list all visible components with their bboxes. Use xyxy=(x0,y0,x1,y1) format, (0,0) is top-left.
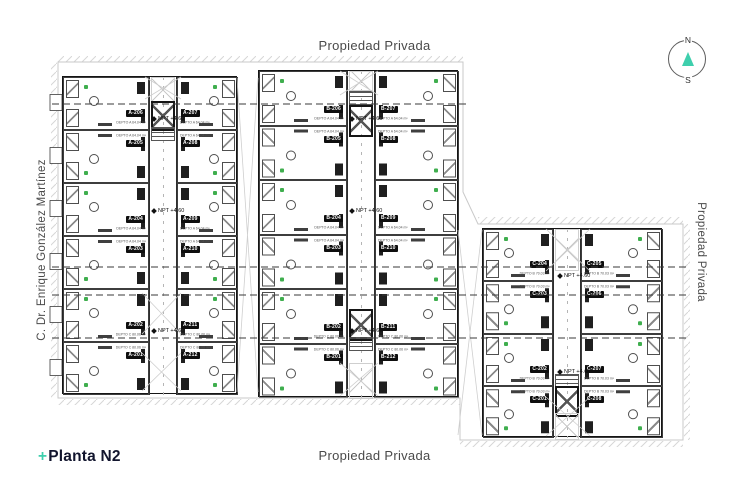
level-text: NPT +4.60 xyxy=(158,328,184,334)
bed-icon xyxy=(222,321,235,339)
bed-icon xyxy=(222,133,235,151)
unit-C-207: C-207DEPTO B 70.03 m² xyxy=(581,334,663,386)
bed-icon xyxy=(486,260,499,278)
bed-icon xyxy=(262,238,275,256)
unit-A-202: A-202DEPTO C 80.06 m² xyxy=(63,289,149,342)
bathroom-icon xyxy=(541,421,549,433)
bed-icon xyxy=(486,389,499,407)
unit-C-204: C-204DEPTO B 70.03 m² xyxy=(483,229,553,281)
light-well xyxy=(349,71,373,91)
dining-table-icon xyxy=(423,368,433,378)
level-diamond-icon xyxy=(151,116,157,122)
plant-icon xyxy=(434,277,438,281)
unit-area-label: DEPTO C 80.06 m² xyxy=(116,346,146,349)
bed-icon xyxy=(486,417,499,435)
unit-B-211: B-211DEPTO C 80.06 m² xyxy=(375,289,459,344)
floor-plan-sheet: Propiedad Privada Propiedad Privada C. D… xyxy=(0,0,749,500)
bed-icon xyxy=(443,183,456,201)
bed-icon xyxy=(443,129,456,147)
unit-B-210: B-210DEPTO A 64.04 m² xyxy=(375,235,459,290)
bed-icon xyxy=(647,365,660,383)
unit-label: A-208 xyxy=(181,140,200,147)
bathroom-icon xyxy=(585,421,593,433)
unit-A-203: A-203DEPTO A 64.04 m² xyxy=(63,236,149,289)
bathroom-icon xyxy=(181,188,189,200)
bed-icon xyxy=(262,377,275,395)
unit-B-208: B-208DEPTO A 64.04 m² xyxy=(375,126,459,181)
plant-icon xyxy=(638,322,642,326)
kitchen-counter-icon xyxy=(616,379,630,382)
kitchen-counter-icon xyxy=(616,285,630,288)
bed-icon xyxy=(443,268,456,286)
unit-A-208: A-208DEPTO A 64.04 m² xyxy=(177,130,238,183)
unit-area-label: DEPTO A 64.04 m² xyxy=(314,239,344,242)
bed-icon xyxy=(443,74,456,92)
level-text: NPT +4.60 xyxy=(564,369,590,375)
unit-B-212: B-212DEPTO C 80.06 m² xyxy=(375,344,459,399)
unit-area-label: DEPTO A 64.04 m² xyxy=(378,239,408,242)
level-marker: NPT +4.60 xyxy=(558,369,590,375)
dining-table-icon xyxy=(423,200,433,210)
dining-table-icon xyxy=(89,96,99,106)
unit-furniture xyxy=(376,127,458,180)
bathroom-icon xyxy=(137,166,145,178)
unit-furniture xyxy=(64,237,148,288)
level-text: NPT +4.60 xyxy=(356,208,382,214)
bed-icon xyxy=(222,268,235,286)
unit-C-203: C-203DEPTO B 70.03 m² xyxy=(483,281,553,333)
bed-icon xyxy=(262,268,275,286)
unit-label: C-208 xyxy=(585,396,604,403)
bed-icon xyxy=(486,337,499,355)
bed-icon xyxy=(66,268,79,286)
kitchen-counter-icon xyxy=(616,390,630,393)
unit-B-203: B-203DEPTO A 64.04 m² xyxy=(259,235,347,290)
level-marker: NPT +4.60 xyxy=(152,116,184,122)
bed-icon xyxy=(262,347,275,365)
unit-area-label: DEPTO A 64.04 m² xyxy=(116,240,146,243)
unit-furniture xyxy=(178,131,237,182)
unit-area-label: DEPTO B 70.03 m² xyxy=(584,377,614,380)
bed-icon xyxy=(66,186,79,204)
unit-label: B-212 xyxy=(379,354,398,361)
unit-label: B-205 xyxy=(324,136,343,143)
dining-table-icon xyxy=(286,309,296,319)
unit-label: B-201 xyxy=(324,354,343,361)
kitchen-counter-icon xyxy=(294,348,308,351)
dining-table-icon xyxy=(423,259,433,269)
unit-label: A-206 xyxy=(126,110,145,117)
bathroom-icon xyxy=(181,82,189,94)
unit-A-204: A-204DEPTO A 64.04 m² xyxy=(63,183,149,236)
level-diamond-icon xyxy=(349,116,355,122)
unit-area-label: DEPTO B 70.03 m² xyxy=(584,390,614,393)
level-text: NPT +4.60 xyxy=(356,116,382,122)
unit-A-209: A-209DEPTO A 64.04 m² xyxy=(177,183,238,236)
dining-table-icon xyxy=(286,150,296,160)
unit-label: A-203 xyxy=(126,246,145,253)
bed-icon xyxy=(66,374,79,392)
unit-label: A-212 xyxy=(181,352,200,359)
bathroom-icon xyxy=(335,185,343,197)
bed-icon xyxy=(262,129,275,147)
dining-table-icon xyxy=(209,202,219,212)
unit-label: A-201 xyxy=(126,352,145,359)
plant-icon xyxy=(84,191,88,195)
unit-B-202: B-202DEPTO C 80.06 m² xyxy=(259,289,347,344)
building-block-c: C-204DEPTO B 70.03 m²C-203DEPTO B 70.03 … xyxy=(482,228,662,437)
dining-table-icon xyxy=(628,304,638,314)
bathroom-icon xyxy=(541,317,549,329)
level-diamond-icon xyxy=(151,328,157,334)
bed-icon xyxy=(486,365,499,383)
bed-icon xyxy=(443,377,456,395)
floor-plan-canvas: A-206DEPTO A 64.04 m²A-205DEPTO A 64.04 … xyxy=(0,0,749,500)
plant-icon xyxy=(638,237,642,241)
kitchen-counter-icon xyxy=(411,337,425,340)
plant-icon xyxy=(84,297,88,301)
plant-icon xyxy=(213,171,217,175)
dining-table-icon xyxy=(504,353,514,363)
unit-label: C-201 xyxy=(530,396,549,403)
stairs xyxy=(349,337,373,351)
dining-table-icon xyxy=(286,200,296,210)
dining-table-icon xyxy=(209,308,219,318)
bed-icon xyxy=(443,214,456,232)
bed-icon xyxy=(443,347,456,365)
unit-area-label: DEPTO B 70.03 m² xyxy=(520,286,550,289)
unit-label: C-206 xyxy=(585,291,604,298)
bed-icon xyxy=(262,214,275,232)
bathroom-icon xyxy=(335,76,343,88)
unit-A-205: A-205DEPTO A 64.04 m² xyxy=(63,130,149,183)
plant-icon xyxy=(504,426,508,430)
unit-area-label: DEPTO B 70.03 m² xyxy=(584,286,614,289)
unit-area-label: DEPTO C 80.06 m² xyxy=(378,348,408,351)
unit-area-label: DEPTO A 64.04 m² xyxy=(314,226,344,229)
kitchen-counter-icon xyxy=(98,229,112,232)
dining-table-icon xyxy=(286,259,296,269)
level-diamond-icon xyxy=(349,208,355,214)
bathroom-icon xyxy=(541,339,549,351)
dining-table-icon xyxy=(504,304,514,314)
unit-C-206: C-206DEPTO B 70.03 m² xyxy=(581,281,663,333)
unit-furniture xyxy=(178,343,237,394)
unit-furniture xyxy=(582,387,662,437)
bed-icon xyxy=(443,292,456,310)
bed-icon xyxy=(647,389,660,407)
level-marker: NPT +4.60 xyxy=(350,116,382,122)
bathroom-icon xyxy=(181,166,189,178)
kitchen-counter-icon xyxy=(98,123,112,126)
bed-icon xyxy=(262,159,275,177)
unit-furniture xyxy=(376,345,458,398)
bed-icon xyxy=(647,232,660,250)
bathroom-icon xyxy=(137,82,145,94)
kitchen-counter-icon xyxy=(616,274,630,277)
kitchen-counter-icon xyxy=(411,348,425,351)
dining-table-icon xyxy=(423,91,433,101)
level-marker: NPT +4.60 xyxy=(350,208,382,214)
bed-icon xyxy=(262,105,275,123)
bed-icon xyxy=(66,345,79,363)
light-well xyxy=(555,229,579,271)
bed-icon xyxy=(486,313,499,331)
unit-B-205: B-205DEPTO A 64.04 m² xyxy=(259,126,347,181)
dining-table-icon xyxy=(423,309,433,319)
bed-icon xyxy=(222,374,235,392)
unit-C-205: C-205DEPTO B 70.03 m² xyxy=(581,229,663,281)
unit-area-label: DEPTO B 70.03 m² xyxy=(520,377,550,380)
unit-label: A-205 xyxy=(126,140,145,147)
kitchen-counter-icon xyxy=(411,130,425,133)
unit-furniture xyxy=(582,282,662,332)
plant-icon xyxy=(638,426,642,430)
unit-C-202: C-202DEPTO B 70.03 m² xyxy=(483,334,553,386)
bathroom-icon xyxy=(181,294,189,306)
bathroom-icon xyxy=(335,381,343,393)
bed-icon xyxy=(443,238,456,256)
unit-B-204: B-204DEPTO A 64.04 m² xyxy=(259,180,347,235)
unit-B-207: B-207DEPTO A 64.04 m² xyxy=(375,71,459,126)
unit-area-label: DEPTO B 70.03 m² xyxy=(520,390,550,393)
unit-furniture xyxy=(260,345,346,398)
kitchen-counter-icon xyxy=(411,239,425,242)
plant-icon xyxy=(434,297,438,301)
unit-label: B-207 xyxy=(379,106,398,113)
level-text: NPT +4.60 xyxy=(564,273,590,279)
unit-furniture xyxy=(178,237,237,288)
unit-label: B-203 xyxy=(324,245,343,252)
plant-icon xyxy=(280,386,284,390)
plant-icon xyxy=(84,85,88,89)
bed-icon xyxy=(443,159,456,177)
dining-table-icon xyxy=(209,260,219,270)
level-diamond-icon xyxy=(557,369,563,375)
kitchen-counter-icon xyxy=(294,119,308,122)
bed-icon xyxy=(222,162,235,180)
plant-icon xyxy=(84,171,88,175)
unit-label: B-208 xyxy=(379,136,398,143)
bed-icon xyxy=(222,345,235,363)
unit-B-209: B-209DEPTO A 64.04 m² xyxy=(375,180,459,235)
bathroom-icon xyxy=(379,163,387,175)
bathroom-icon xyxy=(585,339,593,351)
bathroom-icon xyxy=(585,234,593,246)
bed-icon xyxy=(262,323,275,341)
plant-icon xyxy=(434,168,438,172)
plant-icon xyxy=(213,191,217,195)
kitchen-counter-icon xyxy=(98,346,112,349)
unit-area-label: DEPTO A 64.04 m² xyxy=(314,130,344,133)
plant-icon xyxy=(280,168,284,172)
unit-area-label: DEPTO C 80.06 m² xyxy=(116,333,146,336)
dining-table-icon xyxy=(89,260,99,270)
unit-A-201: A-201DEPTO C 80.06 m² xyxy=(63,342,149,395)
bathroom-icon xyxy=(585,317,593,329)
dining-table-icon xyxy=(89,202,99,212)
unit-label: B-204 xyxy=(324,215,343,222)
bed-icon xyxy=(66,133,79,151)
light-well xyxy=(555,413,579,440)
bathroom-icon xyxy=(379,272,387,284)
plant-icon xyxy=(84,383,88,387)
bed-icon xyxy=(222,80,235,98)
unit-area-label: DEPTO A 64.04 m² xyxy=(378,226,408,229)
unit-label: C-203 xyxy=(530,291,549,298)
bathroom-icon xyxy=(181,378,189,390)
dining-table-icon xyxy=(628,248,638,258)
kitchen-counter-icon xyxy=(294,337,308,340)
unit-area-label: DEPTO C 80.06 m² xyxy=(314,335,344,338)
bed-icon xyxy=(647,313,660,331)
level-marker: NPT +4.60 xyxy=(152,208,184,214)
plant-icon xyxy=(504,322,508,326)
kitchen-counter-icon xyxy=(98,134,112,137)
plant-icon xyxy=(213,85,217,89)
unit-B-206: B-206DEPTO A 64.04 m² xyxy=(259,71,347,126)
bathroom-icon xyxy=(335,294,343,306)
plant-icon xyxy=(638,342,642,346)
plant-icon xyxy=(504,342,508,346)
unit-A-211: A-211DEPTO C 80.06 m² xyxy=(177,289,238,342)
dining-table-icon xyxy=(89,154,99,164)
dining-table-icon xyxy=(209,366,219,376)
bathroom-icon xyxy=(335,272,343,284)
unit-label: C-205 xyxy=(585,261,604,268)
unit-area-label: DEPTO A 64.04 m² xyxy=(116,121,146,124)
bed-icon xyxy=(222,215,235,233)
bed-icon xyxy=(66,292,79,310)
light-well xyxy=(349,363,373,399)
level-text: NPT +4.60 xyxy=(158,208,184,214)
plant-icon xyxy=(280,79,284,83)
dining-table-icon xyxy=(423,150,433,160)
bathroom-icon xyxy=(335,163,343,175)
unit-area-label: DEPTO C 80.06 m² xyxy=(314,348,344,351)
unit-A-210: A-210DEPTO A 64.04 m² xyxy=(177,236,238,289)
unit-C-201: C-201DEPTO B 70.03 m² xyxy=(483,386,553,438)
bathroom-icon xyxy=(181,272,189,284)
dining-table-icon xyxy=(628,353,638,363)
building-block-a: A-206DEPTO A 64.04 m²A-205DEPTO A 64.04 … xyxy=(62,76,237,394)
unit-label: A-204 xyxy=(126,216,145,223)
unit-A-207: A-207DEPTO A 64.04 m² xyxy=(177,77,238,130)
level-diamond-icon xyxy=(557,273,563,279)
plant-icon xyxy=(434,386,438,390)
level-marker: NPT +4.60 xyxy=(350,328,382,334)
bathroom-icon xyxy=(137,294,145,306)
unit-area-label: DEPTO C 80.06 m² xyxy=(180,346,210,349)
kitchen-counter-icon xyxy=(98,335,112,338)
bed-icon xyxy=(222,239,235,257)
bed-icon xyxy=(486,284,499,302)
stairs xyxy=(151,127,175,141)
unit-area-label: DEPTO A 64.04 m² xyxy=(314,117,344,120)
kitchen-counter-icon xyxy=(411,119,425,122)
plant-icon xyxy=(280,188,284,192)
plant-icon xyxy=(434,79,438,83)
unit-A-212: A-212DEPTO C 80.06 m² xyxy=(177,342,238,395)
unit-area-label: DEPTO C 80.06 m² xyxy=(180,333,210,336)
bathroom-icon xyxy=(379,381,387,393)
level-text: NPT +4.60 xyxy=(356,328,382,334)
dining-table-icon xyxy=(628,409,638,419)
unit-area-label: DEPTO A 64.04 m² xyxy=(180,227,210,230)
unit-area-label: DEPTO A 64.04 m² xyxy=(116,227,146,230)
plant-icon xyxy=(434,188,438,192)
unit-C-208: C-208DEPTO B 70.03 m² xyxy=(581,386,663,438)
unit-area-label: DEPTO C 80.06 m² xyxy=(378,335,408,338)
bed-icon xyxy=(647,417,660,435)
unit-area-label: DEPTO A 64.04 m² xyxy=(378,117,408,120)
unit-furniture xyxy=(260,127,346,180)
stairs xyxy=(349,91,373,106)
corridor xyxy=(553,229,581,438)
kitchen-counter-icon xyxy=(294,228,308,231)
bed-icon xyxy=(66,321,79,339)
plant-icon xyxy=(84,277,88,281)
bed-icon xyxy=(262,183,275,201)
level-text: NPT +4.60 xyxy=(158,116,184,122)
unit-label: C-204 xyxy=(530,261,549,268)
kitchen-counter-icon xyxy=(98,240,112,243)
bed-icon xyxy=(66,109,79,127)
dining-table-icon xyxy=(89,308,99,318)
kitchen-counter-icon xyxy=(411,228,425,231)
bed-icon xyxy=(66,215,79,233)
corridor xyxy=(149,77,177,395)
bed-icon xyxy=(66,162,79,180)
bed-icon xyxy=(443,323,456,341)
unit-area-label: DEPTO A 64.04 m² xyxy=(180,134,210,137)
level-diamond-icon xyxy=(151,208,157,214)
bed-icon xyxy=(222,109,235,127)
dining-table-icon xyxy=(209,154,219,164)
bed-icon xyxy=(262,74,275,92)
light-well xyxy=(151,77,175,103)
unit-label: A-210 xyxy=(181,246,200,253)
plant-icon xyxy=(213,297,217,301)
bathroom-icon xyxy=(379,294,387,306)
unit-area-label: DEPTO A 64.04 m² xyxy=(180,240,210,243)
bed-icon xyxy=(486,232,499,250)
dining-table-icon xyxy=(286,91,296,101)
unit-label: C-202 xyxy=(530,366,549,373)
unit-furniture xyxy=(64,343,148,394)
bathroom-icon xyxy=(137,188,145,200)
bathroom-icon xyxy=(541,234,549,246)
unit-furniture xyxy=(484,387,552,437)
dining-table-icon xyxy=(209,96,219,106)
dining-table-icon xyxy=(286,368,296,378)
unit-label: B-209 xyxy=(379,215,398,222)
level-marker: NPT +4.60 xyxy=(152,328,184,334)
bed-icon xyxy=(222,292,235,310)
bathroom-icon xyxy=(379,185,387,197)
level-diamond-icon xyxy=(349,328,355,334)
unit-furniture xyxy=(376,236,458,289)
unit-area-label: DEPTO A 64.04 m² xyxy=(116,134,146,137)
bed-icon xyxy=(647,284,660,302)
unit-label: B-206 xyxy=(324,106,343,113)
unit-furniture xyxy=(484,282,552,332)
bathroom-icon xyxy=(137,272,145,284)
dining-table-icon xyxy=(89,366,99,376)
unit-A-206: A-206DEPTO A 64.04 m² xyxy=(63,77,149,130)
unit-furniture xyxy=(64,131,148,182)
plant-icon xyxy=(280,277,284,281)
